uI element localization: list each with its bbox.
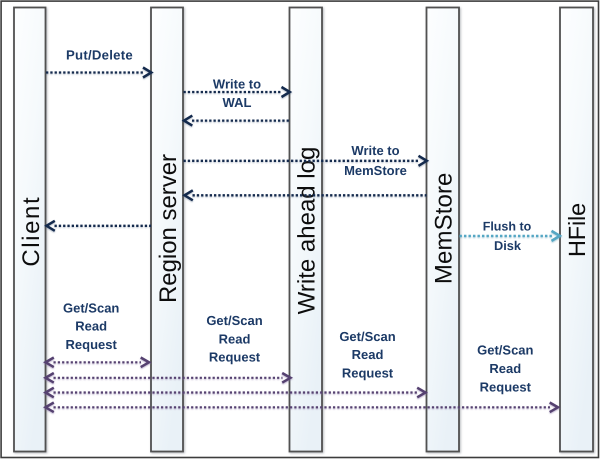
svg-text:Write to: Write to bbox=[213, 77, 261, 92]
svg-text:Write to: Write to bbox=[351, 143, 399, 158]
svg-text:MemStore: MemStore bbox=[344, 163, 407, 178]
svg-text:Region server: Region server bbox=[155, 154, 182, 303]
svg-text:Put/Delete: Put/Delete bbox=[66, 47, 133, 62]
svg-text:Get/Scan: Get/Scan bbox=[477, 343, 533, 358]
svg-text:Read: Read bbox=[219, 331, 251, 346]
svg-text:HFile: HFile bbox=[564, 203, 590, 257]
svg-text:Write ahead log: Write ahead log bbox=[294, 147, 321, 315]
svg-text:Request: Request bbox=[480, 380, 532, 395]
svg-text:Read: Read bbox=[75, 319, 107, 334]
svg-text:Get/Scan: Get/Scan bbox=[63, 300, 119, 315]
svg-text:WAL: WAL bbox=[223, 95, 252, 110]
svg-text:Get/Scan: Get/Scan bbox=[206, 313, 262, 328]
svg-text:Read: Read bbox=[352, 347, 384, 362]
svg-text:MemStore: MemStore bbox=[431, 172, 458, 284]
svg-text:Request: Request bbox=[66, 337, 118, 352]
svg-text:Client: Client bbox=[18, 196, 45, 267]
svg-text:Disk: Disk bbox=[494, 238, 522, 253]
svg-text:Get/Scan: Get/Scan bbox=[339, 329, 395, 344]
svg-text:Read: Read bbox=[489, 361, 521, 376]
svg-text:Request: Request bbox=[342, 365, 394, 380]
svg-text:Flush to: Flush to bbox=[483, 220, 532, 234]
svg-text:Request: Request bbox=[209, 350, 261, 365]
